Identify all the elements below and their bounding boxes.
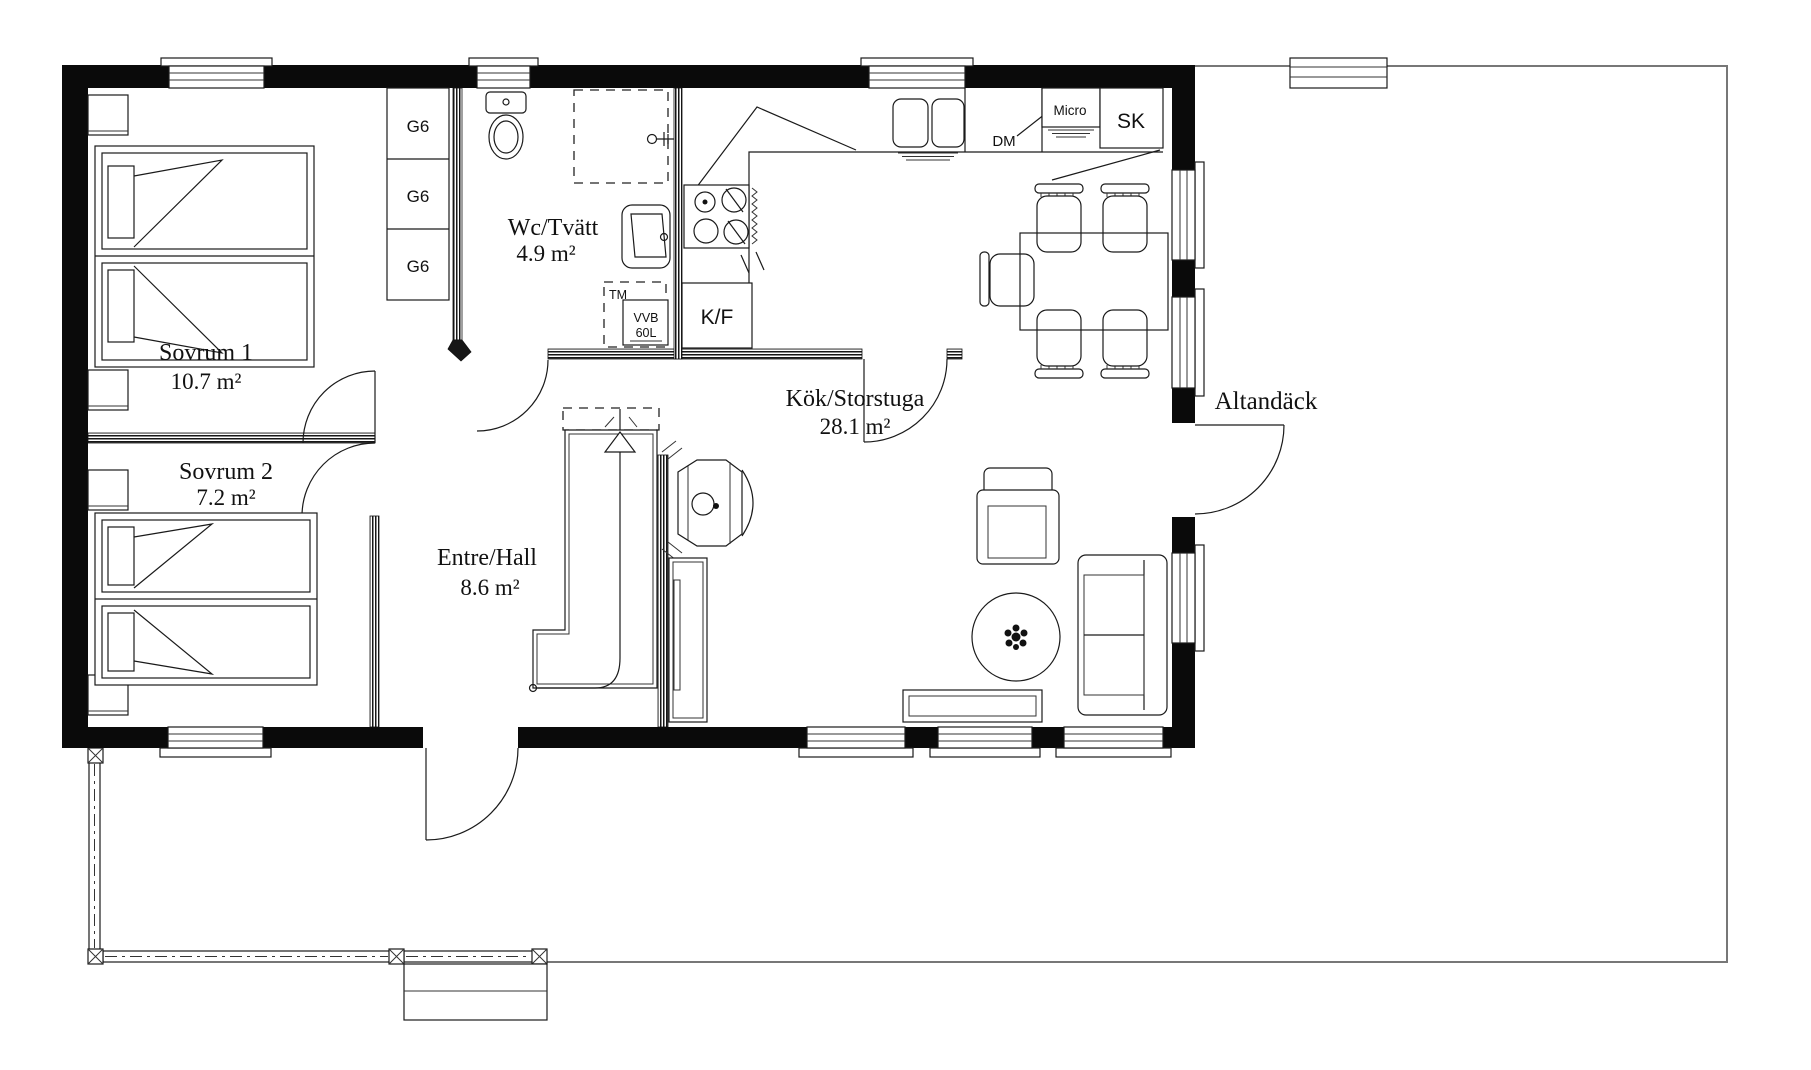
wardrobe-column: G6 G6 G6: [387, 88, 449, 300]
room-labels: Sovrum 1 10.7 m² Sovrum 2 7.2 m² Wc/Tvät…: [159, 215, 1318, 600]
window: [1172, 289, 1204, 396]
sink-icon: [893, 99, 964, 160]
deck-steps-north: [1290, 58, 1387, 88]
porch-post: [88, 949, 103, 964]
room-area-sovrum2: 7.2 m²: [196, 485, 255, 510]
room-label-kok: Kök/Storstuga: [786, 386, 925, 412]
wardrobe-label: G6: [407, 117, 430, 136]
microwave: Micro: [1042, 88, 1100, 137]
microwave-label: Micro: [1054, 103, 1087, 118]
porch-post: [88, 748, 103, 763]
chair: [1101, 184, 1149, 252]
wardrobe-label: G6: [407, 187, 430, 206]
room-label-wc: Wc/Tvätt: [508, 215, 599, 241]
window: [1172, 162, 1204, 268]
porch-post: [532, 949, 547, 964]
window: [930, 727, 1040, 757]
fireplace: [662, 441, 753, 560]
water-heater: VVB 60L: [623, 300, 668, 345]
living-room-furniture: [903, 468, 1167, 722]
door-deck: [1195, 425, 1284, 514]
door-sovrum1: [303, 371, 375, 443]
porch-railing: [88, 748, 547, 1020]
armchair: [977, 468, 1059, 564]
shower-mixer-icon: [648, 132, 675, 146]
wardrobe-label: G6: [407, 257, 430, 276]
room-label-sovrum1: Sovrum 1: [159, 340, 253, 366]
rug-with-plant: [972, 593, 1060, 681]
porch-steps: [404, 964, 547, 1020]
tall-cabinet-label: SK: [1117, 110, 1145, 133]
floor-plan-drawing: G6 G6 G6 TM VVB 60L: [0, 0, 1811, 1070]
porch-post: [389, 949, 404, 964]
window: [799, 727, 913, 757]
room-area-hall: 8.6 m²: [460, 575, 519, 600]
fridge-freezer: K/F: [682, 283, 752, 348]
tv-bench: [903, 690, 1042, 722]
plant-icon: [1005, 625, 1028, 651]
dining-set: [980, 184, 1168, 378]
chair: [980, 252, 1034, 306]
bed: [95, 513, 317, 685]
fridge-freezer-label: K/F: [701, 306, 734, 329]
chair: [1035, 184, 1083, 252]
dishwasher-label: DM: [992, 133, 1015, 150]
door-sovrum2: [302, 443, 375, 516]
window: [160, 727, 271, 757]
washbasin-icon: [622, 205, 670, 268]
window: [1172, 545, 1204, 651]
room-label-hall: Entre/Hall: [437, 545, 537, 571]
window: [861, 58, 973, 88]
bed: [95, 146, 314, 367]
deck-label: Altandäck: [1215, 388, 1318, 415]
bookshelf: [669, 558, 707, 722]
window: [469, 58, 538, 88]
window: [1056, 727, 1171, 757]
kitchen: K/F DM Micro SK: [682, 88, 1168, 378]
floor-plan-canvas: G6 G6 G6 TM VVB 60L: [0, 0, 1811, 1070]
stair: [530, 408, 660, 692]
door-wc: [477, 360, 548, 431]
room-label-sovrum2: Sovrum 2: [179, 459, 273, 485]
room-area-wc: 4.9 m²: [516, 241, 575, 266]
dishwasher: DM: [992, 88, 1045, 152]
toilet-icon: [486, 92, 526, 159]
window: [161, 58, 272, 88]
stove-icon: [684, 185, 757, 248]
water-heater-label: VVB: [633, 311, 658, 325]
room-area-sovrum1: 10.7 m²: [171, 369, 242, 394]
loft-edge: [563, 408, 659, 430]
sofa: [1078, 555, 1167, 715]
room-area-kok: 28.1 m²: [820, 414, 891, 439]
door-entrance: [426, 748, 518, 840]
chair: [1101, 310, 1149, 378]
water-heater-label: 60L: [636, 326, 657, 340]
chair: [1035, 310, 1083, 378]
